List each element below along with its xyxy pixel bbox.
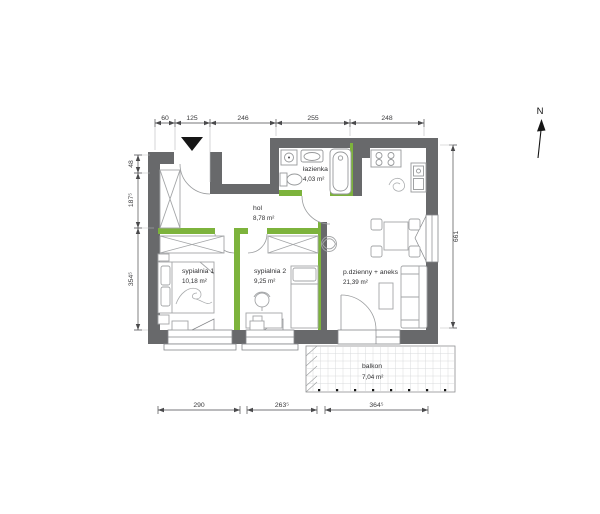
dim-left-2: 354⁵ bbox=[128, 272, 135, 286]
dining-chair bbox=[371, 219, 382, 230]
dim-left-0: 48 bbox=[128, 160, 135, 168]
room-area-balkon: 7,04 m² bbox=[362, 374, 383, 381]
dim-left-1: 187⁵ bbox=[128, 193, 135, 207]
room-area-sypialnia-1: 10,18 m² bbox=[182, 278, 207, 285]
room-area-pdzienny: 21,39 m² bbox=[343, 279, 368, 286]
nightstand bbox=[158, 254, 169, 261]
dining-table bbox=[384, 222, 408, 250]
toilet bbox=[280, 173, 287, 186]
dim-top-2: 246 bbox=[237, 115, 249, 122]
room-label-sypialnia-1: sypialnia 1 bbox=[182, 268, 214, 275]
entrance-marker bbox=[181, 137, 203, 151]
room-area-hol: 8,78 m² bbox=[253, 215, 274, 222]
north-label: N bbox=[537, 106, 544, 117]
dining-chair bbox=[409, 219, 420, 230]
room-label-sypialnia-2: sypialnia 2 bbox=[254, 268, 286, 275]
north-arrow-shaft bbox=[538, 130, 541, 158]
floor-plan-page: łazienka 4,03 m² hol 8,78 m² sypialnia 1… bbox=[0, 0, 600, 514]
bedroom2-door-arc bbox=[248, 234, 267, 253]
dim-right-0: 661 bbox=[453, 231, 460, 243]
room-label-hol: hol bbox=[253, 205, 263, 212]
dining-chair bbox=[371, 246, 382, 257]
room-area-lazienka: 4,03 m² bbox=[303, 176, 324, 183]
dim-top-0: 60 bbox=[161, 115, 169, 122]
room-area-sypialnia-2: 9,25 m² bbox=[254, 278, 275, 285]
kitchen-fixtures bbox=[371, 150, 426, 192]
room-label-pdzienny: p.dzienny + aneks bbox=[343, 269, 399, 276]
desk-chair bbox=[255, 293, 269, 307]
coffee-table bbox=[379, 283, 393, 309]
room-label-lazienka: łazienka bbox=[303, 166, 328, 173]
room-label-balkon: balkon bbox=[362, 363, 382, 370]
floor-plan-drawing: łazienka 4,03 m² hol 8,78 m² sypialnia 1… bbox=[0, 0, 600, 514]
bathroom-door-arc bbox=[302, 196, 330, 224]
radiator bbox=[172, 321, 188, 330]
dim-top-3: 255 bbox=[307, 115, 319, 122]
dimension-bottom: 290 263⁵ 364⁵ bbox=[158, 402, 428, 414]
dim-top-1: 125 bbox=[186, 115, 198, 122]
kitchen-tap-squiggle bbox=[389, 178, 405, 191]
north-arrow: N bbox=[537, 106, 546, 158]
dim-bottom-2: 364⁵ bbox=[369, 402, 383, 409]
dim-bottom-1: 263⁵ bbox=[275, 402, 289, 409]
radiator bbox=[250, 321, 264, 330]
dimension-right: 661 bbox=[440, 145, 460, 328]
entrance-door-arc bbox=[180, 164, 210, 194]
dim-top-4: 248 bbox=[381, 115, 393, 122]
north-arrow-head bbox=[537, 119, 546, 132]
dim-bottom-0: 290 bbox=[193, 402, 205, 409]
nightstand bbox=[158, 315, 169, 324]
dimension-top: 60 125 246 255 248 bbox=[155, 115, 424, 182]
stove bbox=[371, 150, 401, 167]
hallway-furniture bbox=[160, 170, 180, 228]
dining-chair bbox=[409, 246, 420, 257]
